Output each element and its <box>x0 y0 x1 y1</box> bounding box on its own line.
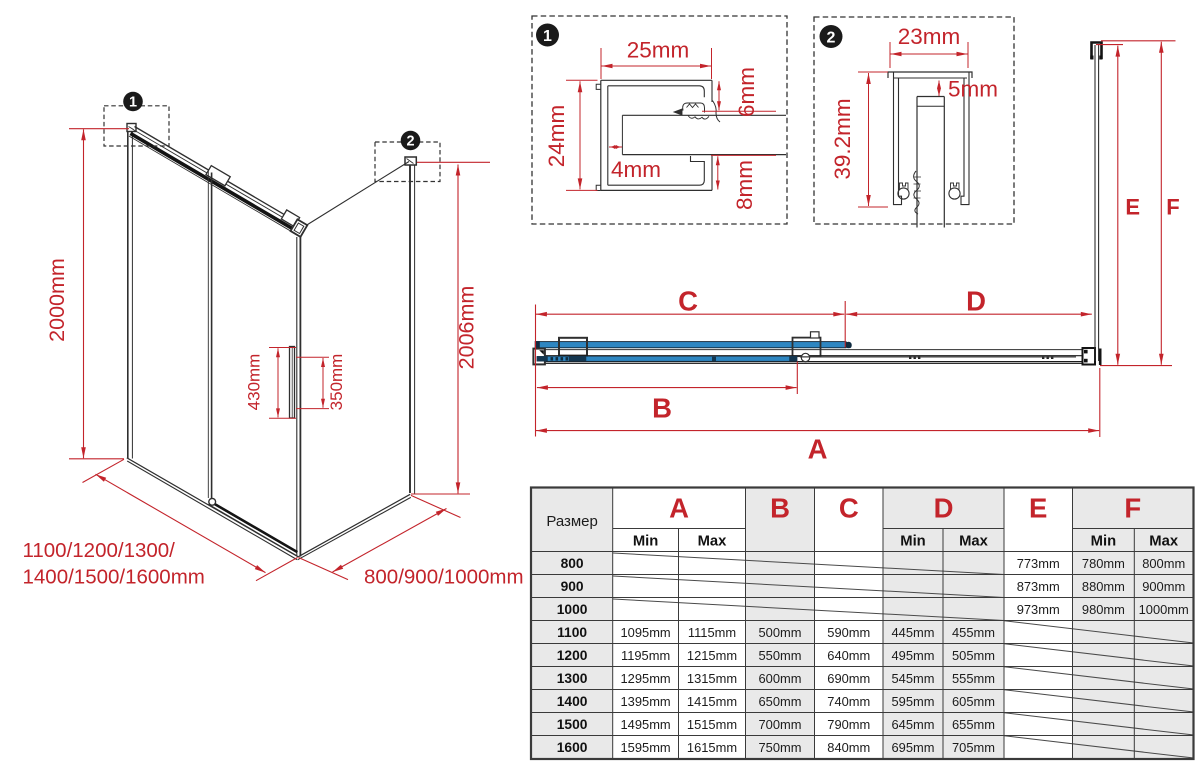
svg-text:1100/1200/1300/: 1100/1200/1300/ <box>23 539 176 562</box>
svg-text:2: 2 <box>406 134 414 150</box>
svg-text:695mm: 695mm <box>892 740 935 755</box>
svg-text:1315mm: 1315mm <box>687 671 737 686</box>
svg-text:690mm: 690mm <box>827 671 870 686</box>
svg-text:605mm: 605mm <box>952 694 995 709</box>
svg-text:1500: 1500 <box>557 717 588 732</box>
svg-text:D: D <box>966 286 986 317</box>
svg-text:Min: Min <box>1091 533 1116 549</box>
svg-text:840mm: 840mm <box>827 740 870 755</box>
svg-text:A: A <box>669 493 689 524</box>
svg-text:24mm: 24mm <box>544 105 569 168</box>
svg-text:780mm: 780mm <box>1082 556 1125 571</box>
svg-text:F: F <box>1166 195 1179 220</box>
svg-text:1595mm: 1595mm <box>621 740 671 755</box>
svg-text:545mm: 545mm <box>892 671 935 686</box>
svg-text:1100: 1100 <box>557 625 587 640</box>
svg-text:6mm: 6mm <box>734 67 759 117</box>
svg-text:1615mm: 1615mm <box>687 740 737 755</box>
svg-text:1: 1 <box>543 28 552 45</box>
svg-text:1395mm: 1395mm <box>621 694 671 709</box>
svg-text:C: C <box>839 493 859 524</box>
svg-text:430mm: 430mm <box>245 354 264 411</box>
svg-text:800: 800 <box>561 556 584 571</box>
svg-text:350mm: 350mm <box>327 354 346 411</box>
svg-text:445mm: 445mm <box>892 625 935 640</box>
svg-text:973mm: 973mm <box>1017 602 1060 617</box>
svg-text:A: A <box>808 434 828 465</box>
svg-text:C: C <box>678 286 698 317</box>
svg-text:800/900/1000mm: 800/900/1000mm <box>364 566 524 589</box>
svg-text:645mm: 645mm <box>892 717 935 732</box>
svg-text:1600: 1600 <box>557 740 588 755</box>
svg-text:1200: 1200 <box>557 648 588 663</box>
svg-text:B: B <box>652 393 672 424</box>
svg-text:4mm: 4mm <box>611 157 661 182</box>
svg-text:1495mm: 1495mm <box>621 717 671 732</box>
svg-text:Min: Min <box>633 533 658 549</box>
svg-text:1300: 1300 <box>557 671 588 686</box>
svg-text:773mm: 773mm <box>1017 556 1060 571</box>
svg-text:8mm: 8mm <box>732 160 757 210</box>
svg-text:1515mm: 1515mm <box>687 717 737 732</box>
svg-text:Min: Min <box>900 533 925 549</box>
svg-text:1195mm: 1195mm <box>621 648 670 663</box>
svg-text:E: E <box>1125 195 1140 220</box>
svg-text:Max: Max <box>1149 533 1179 549</box>
svg-text:25mm: 25mm <box>627 38 690 63</box>
svg-text:1115mm: 1115mm <box>688 625 736 640</box>
svg-text:590mm: 590mm <box>827 625 870 640</box>
svg-text:595mm: 595mm <box>892 694 935 709</box>
svg-text:D: D <box>934 493 954 524</box>
svg-text:Max: Max <box>698 533 728 549</box>
svg-text:505mm: 505mm <box>952 648 995 663</box>
svg-text:873mm: 873mm <box>1017 579 1060 594</box>
svg-text:500mm: 500mm <box>759 625 802 640</box>
svg-text:800mm: 800mm <box>1142 556 1185 571</box>
svg-text:23mm: 23mm <box>898 24 961 49</box>
svg-text:E: E <box>1029 493 1047 524</box>
svg-text:700mm: 700mm <box>759 717 802 732</box>
svg-text:1095mm: 1095mm <box>621 625 671 640</box>
svg-text:B: B <box>770 493 790 524</box>
svg-text:640mm: 640mm <box>827 648 870 663</box>
svg-text:880mm: 880mm <box>1082 579 1125 594</box>
svg-text:2000mm: 2000mm <box>45 258 69 342</box>
svg-text:555mm: 555mm <box>952 671 995 686</box>
svg-text:655mm: 655mm <box>952 717 995 732</box>
svg-text:750mm: 750mm <box>759 740 802 755</box>
svg-text:740mm: 740mm <box>827 694 870 709</box>
svg-text:1000: 1000 <box>557 602 588 617</box>
svg-text:2006mm: 2006mm <box>455 286 479 370</box>
svg-text:980mm: 980mm <box>1082 602 1125 617</box>
svg-text:1415mm: 1415mm <box>687 694 737 709</box>
svg-text:39.2mm: 39.2mm <box>830 98 855 179</box>
svg-text:1: 1 <box>129 95 137 111</box>
svg-text:1400: 1400 <box>557 694 588 709</box>
svg-text:650mm: 650mm <box>759 694 802 709</box>
svg-text:495mm: 495mm <box>892 648 935 663</box>
svg-text:900mm: 900mm <box>1142 579 1185 594</box>
svg-text:Max: Max <box>959 533 989 549</box>
svg-text:1215mm: 1215mm <box>687 648 737 663</box>
svg-text:2: 2 <box>827 29 836 46</box>
svg-text:F: F <box>1124 493 1141 524</box>
svg-text:1000mm: 1000mm <box>1139 602 1189 617</box>
svg-text:5mm: 5mm <box>948 77 998 102</box>
svg-text:600mm: 600mm <box>759 671 802 686</box>
svg-text:455mm: 455mm <box>952 625 995 640</box>
svg-text:705mm: 705mm <box>952 740 995 755</box>
svg-text:900: 900 <box>561 579 584 594</box>
svg-text:Размер: Размер <box>546 513 598 530</box>
svg-text:1400/1500/1600mm: 1400/1500/1600mm <box>23 566 205 589</box>
svg-text:1295mm: 1295mm <box>621 671 671 686</box>
svg-text:790mm: 790mm <box>827 717 870 732</box>
svg-text:550mm: 550mm <box>759 648 802 663</box>
